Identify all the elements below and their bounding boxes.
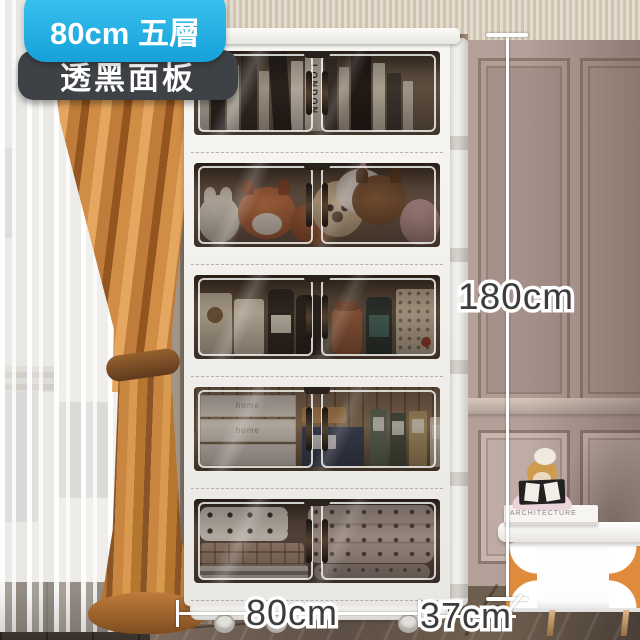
cabinet-tier-plush-toys [187,158,447,258]
door-handle [306,407,312,451]
cabinet-door-left [198,502,313,580]
door-hinge [304,51,330,58]
door-handle [322,295,328,339]
cabinet-door-left [198,278,313,356]
door-hinge [304,163,330,170]
door-handle [322,407,328,451]
door-hinge [304,275,330,282]
orange-motif [609,546,640,608]
size-badge: 80cm 五層 [24,0,226,62]
figurine-book [519,479,566,505]
height-dimension-line [506,37,509,599]
door-hinge [304,387,330,394]
cabinet-top [186,28,460,44]
door-handle [322,183,328,227]
cabinet-door-right [321,54,436,132]
cabinet-door-right [321,390,436,468]
cabinet-door-right [321,502,436,580]
cabinet-door-right [321,166,436,244]
tier-window [194,499,440,583]
cabinet-tier-boxes: home home [187,382,447,482]
door-handle [306,183,312,227]
door-handle [306,71,312,115]
cabinet-side-panel [448,38,468,606]
door-handle [306,295,312,339]
cabinet-tier-bottles [187,270,447,370]
tier-window [194,163,440,247]
width-label: 80cm [246,592,338,634]
caster-wheel [214,614,235,633]
height-label: 180cm [458,276,574,318]
caster-wheel [398,614,419,633]
door-handle [322,71,328,115]
height-dimension-cap-top [486,33,528,37]
cabinet-tier-bedding [187,494,447,594]
tier-window [194,275,440,359]
tier-window: home home [194,387,440,471]
figurine-cat [534,448,556,465]
nightstand-top [498,522,640,542]
cabinet-door-right [321,278,436,356]
product-photo: LONDON [0,0,640,640]
door-hinge [304,499,330,506]
width-dimension-cap-left [176,600,179,627]
storage-cabinet: LONDON [184,26,472,622]
door-handle [306,519,312,563]
cabinet-door-left [198,166,313,244]
door-handle [322,519,328,563]
decor-book-spine-text: ARCHITECTURE [510,510,577,517]
reading-girl-figurine [512,452,572,508]
nightstand [506,542,640,612]
cabinet-door-left [198,390,313,468]
depth-label: 37cm [420,595,512,637]
cabinet-front: LONDON [184,40,450,606]
